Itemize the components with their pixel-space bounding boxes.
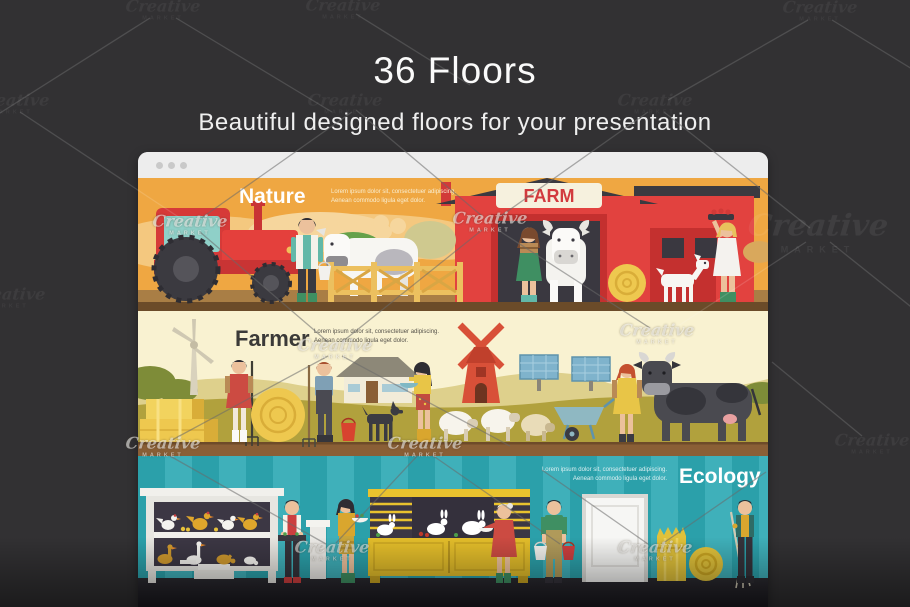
window-control-dot[interactable] — [180, 162, 187, 169]
house-door — [366, 381, 378, 403]
banner-ecology-desc-2: Aenean commodo ligula eget dolor. — [573, 476, 667, 482]
muzzle — [554, 250, 578, 264]
banner-nature-desc-2: Aenean commodo ligula eget dolor. — [331, 198, 425, 204]
banner-ecology-title: Ecology — [679, 465, 761, 488]
overall-dress — [516, 253, 542, 281]
watermark: CreativeMARKET — [306, 0, 381, 21]
white-door — [582, 494, 648, 582]
farm-sign: FARM — [496, 183, 602, 208]
browser-window: FARM — [138, 152, 768, 607]
banner-ecology[interactable]: Ecology Lorem ipsum dolor sit, consectet… — [138, 456, 768, 607]
windmill-window — [476, 367, 486, 377]
ground-dark — [138, 302, 768, 311]
banner-ecology-desc-1: Lorem ipsum dolor sit, consectetuer adip… — [542, 467, 667, 473]
watermark: CreativeMARKET — [0, 286, 45, 310]
window-control-dot[interactable] — [156, 162, 163, 169]
banner-farmer-title: Farmer — [235, 326, 310, 351]
poultry-showcase — [140, 488, 284, 583]
watermark: CreativeMARKET — [126, 0, 201, 22]
white-pedestal — [310, 526, 326, 579]
browser-titlebar — [138, 152, 768, 178]
banner-farmer-desc-1: Lorem ipsum dolor sit, consectetuer adip… — [314, 329, 439, 335]
banner-farmer-desc-2: Aenean commodo ligula eget dolor. — [314, 338, 408, 344]
banner-nature-desc-1: Lorem ipsum dolor sit, consectetuer adip… — [331, 189, 456, 195]
barn-window — [662, 238, 684, 258]
udder — [723, 414, 737, 424]
tractor-rear-wheel — [154, 237, 218, 301]
veg-tray — [278, 535, 306, 541]
page-subtitle: Beautiful designed floors for your prese… — [0, 109, 910, 137]
apple-tray — [708, 214, 734, 220]
hay-roll — [689, 547, 723, 581]
hay-roll — [251, 388, 305, 442]
barn-window — [695, 238, 717, 258]
house-window — [348, 384, 360, 392]
red-barn: FARM — [436, 178, 760, 302]
ecology-scene: Ecology Lorem ipsum dolor sit, consectet… — [138, 456, 768, 607]
banner-nature-title: Nature — [239, 185, 306, 208]
hero: 36 Floors Beautiful designed floors for … — [0, 50, 910, 137]
straw-sack — [657, 527, 686, 581]
watermark: CreativeMARKET — [748, 212, 888, 255]
banner-nature[interactable]: FARM — [138, 178, 768, 311]
watermark: CreativeMARKET — [783, 0, 858, 23]
banner-farmer[interactable]: Farmer Lorem ipsum dolor sit, consectetu… — [138, 311, 768, 456]
window-control-dot[interactable] — [168, 162, 175, 169]
farmer-scene: Farmer Lorem ipsum dolor sit, consectetu… — [138, 311, 768, 456]
hay-bale — [608, 264, 646, 302]
floor — [138, 578, 768, 607]
watermark: CreativeMARKET — [835, 432, 910, 456]
nature-scene: FARM — [138, 178, 768, 311]
farm-sign-text: FARM — [524, 186, 575, 206]
windmill-door — [475, 383, 487, 403]
tractor-front-wheel — [252, 264, 290, 302]
page-background: 36 Floors Beautiful designed floors for … — [0, 0, 910, 607]
page-title: 36 Floors — [0, 50, 910, 92]
muzzle — [644, 383, 670, 395]
